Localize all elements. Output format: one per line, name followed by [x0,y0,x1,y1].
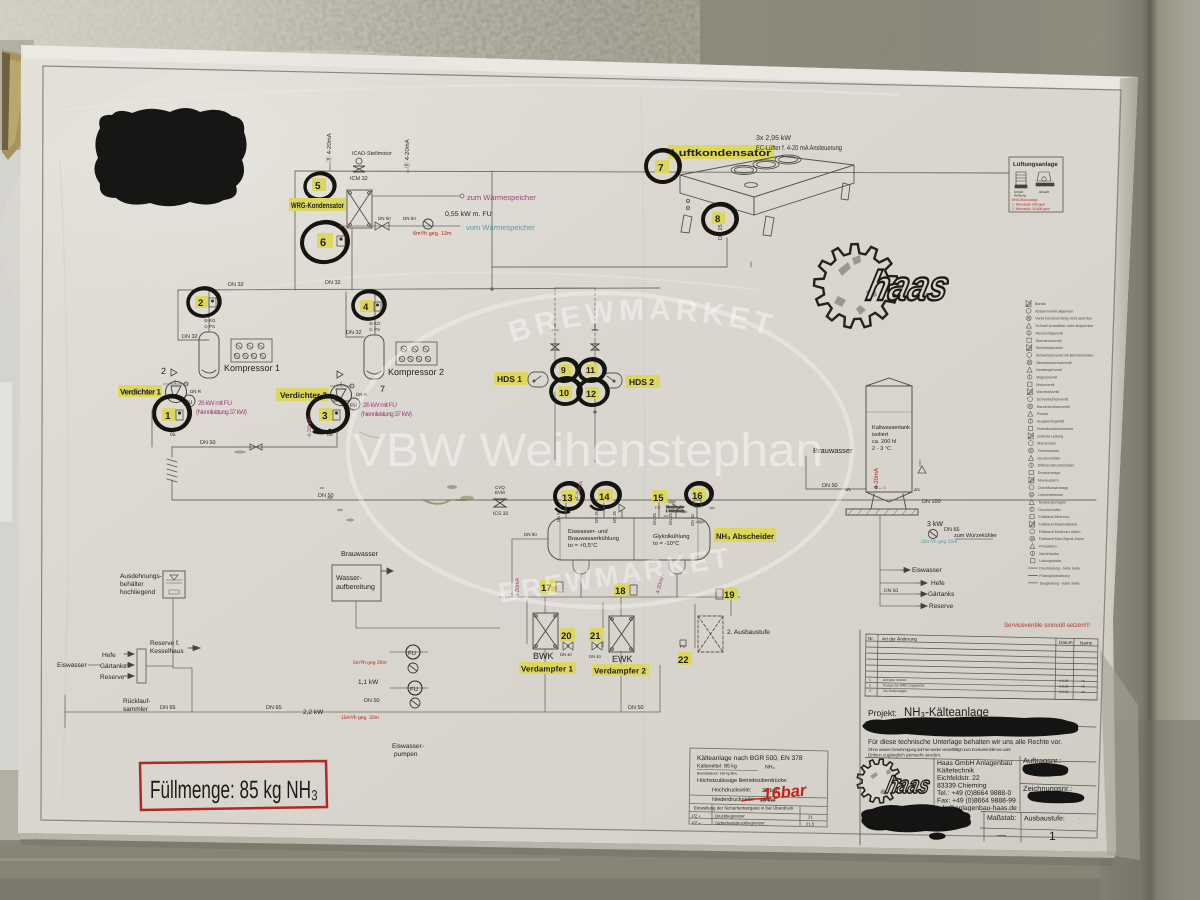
svg-text:⊙ PS: ⊙ PS [369,327,380,332]
svg-text:DN 50: DN 50 [884,588,898,594]
svg-text:Brauwasser: Brauwasser [341,551,379,558]
svg-text:Druckschalter: Druckschalter [1038,456,1061,460]
svg-text:Magnetventil: Magnetventil [1036,376,1057,380]
svg-text:Hochdruckschwimmer: Hochdruckschwimmer [1037,427,1074,431]
svg-text:Manometer: Manometer [1037,442,1056,446]
svg-text:Fax: +49 (0)8664 9888-99: Fax: +49 (0)8664 9888-99 [937,798,1016,805]
svg-text:15: 15 [653,493,664,504]
svg-text:DN 50: DN 50 [378,216,391,221]
svg-text:Überströmschaltventil: Überströmschaltventil [1036,360,1072,365]
svg-text:25m³/h geg 25m: 25m³/h geg 25m [921,539,957,545]
svg-text:Maßstab:: Maßstab: [987,814,1016,822]
svg-text:Kälteanlage nach BGR 500, EN: Kälteanlage nach BGR 500, EN 378 [697,755,803,762]
svg-text:3 kW: 3 kW [927,520,943,528]
svg-text:FU: FU [410,686,418,693]
svg-text:Wasser-: Wasser- [336,575,362,582]
svg-text:DN 50: DN 50 [200,440,216,446]
svg-text:zum Würzekühler: zum Würzekühler [954,533,997,539]
svg-text:Lüftungsanlage: Lüftungsanlage [1013,161,1058,168]
svg-text:FU: FU [680,644,685,649]
svg-text:FU: FU [655,505,660,510]
svg-text:Verdampfer 2: Verdampfer 2 [594,667,647,676]
svg-text:Leitwertmesser: Leitwertmesser [1038,493,1064,497]
svg-text:Rücklauf-: Rücklauf- [123,698,150,705]
svg-text:2 - 3 °C: 2 - 3 °C [872,446,891,452]
svg-text:Produktion: Produktion [1039,545,1057,549]
svg-text:3: 3 [322,411,328,422]
svg-text:DN 65: DN 65 [266,705,282,711]
svg-text:7: 7 [380,384,385,394]
svg-text:vb: vb [1081,685,1085,689]
svg-text:Kaltwassertank: Kaltwassertank [872,424,910,431]
svg-text:Höchstzulässige Betriebsüberdr: Höchstzulässige Betriebsüberdrücke: [697,778,788,784]
svg-text:DN 25: DN 25 [612,510,617,523]
svg-text:Serviceventile sinnvoll setzen: Serviceventile sinnvoll setzen!!! [1004,622,1090,629]
svg-text:26 kW mit FU: 26 kW mit FU [363,402,397,409]
svg-text:haas: haas [863,262,955,309]
svg-text:Gärtanks: Gärtanks [928,591,955,598]
svg-text:Armatur ersetzt: Armatur ersetzt [883,678,906,682]
svg-text:8: 8 [715,214,720,225]
svg-text:Druckbegrenzer: Druckbegrenzer [715,814,745,819]
svg-text:Ausgleichsgefäß: Ausgleichsgefäß [1037,420,1065,424]
svg-text:Datum: Datum [1059,640,1073,645]
svg-text:Handregelventil: Handregelventil [1036,368,1062,372]
svg-text:NH3-Warnanlage: NH3-Warnanlage [1012,198,1038,202]
svg-text:DN 25: DN 25 [668,512,673,525]
svg-text:DN 50: DN 50 [690,513,695,526]
svg-text:Füllstand Minimum: Füllstand Minimum [1039,515,1070,519]
svg-text:Haas GmbH Anlagenbau: Haas GmbH Anlagenbau [937,760,1012,767]
svg-text:9: 9 [561,365,566,375]
svg-text:ICS 32: ICS 32 [493,511,509,517]
svg-text:⊙ PS: ⊙ PS [204,324,215,329]
svg-text:Dritten zugänglich gemacht wer: Dritten zugänglich gemacht werden. [868,753,941,758]
svg-text:WRG-Kondensator: WRG-Kondensator [291,201,344,210]
svg-text:2te Änderungen: 2te Änderungen [883,689,907,693]
svg-text:Saugleitung - kalte Seite: Saugleitung - kalte Seite [1040,581,1080,585]
svg-text:1: 1 [165,411,171,422]
svg-text:4-20mA: 4-20mA [307,417,313,437]
svg-text:d/c: d/c [914,487,921,492]
svg-text:isoliert: isoliert [872,431,889,438]
svg-text:Reserve f.: Reserve f. [150,640,180,647]
svg-text:DN 32: DN 32 [325,280,341,286]
svg-text:Motorventil: Motorventil [1036,383,1054,387]
svg-text:Absperrventil allgemein: Absperrventil allgemein [1035,309,1073,313]
svg-text:Kühlung: Kühlung [1014,194,1026,198]
svg-text:f. Sicherheits: f. Sicherheits [666,509,685,513]
svg-text:Ablueft: Ablueft [1039,190,1049,194]
svg-text:11: 11 [586,365,595,375]
svg-text:Eichfeldstr. 22: Eichfeldstr. 22 [937,775,980,782]
svg-text:Füllmenge: 85 kg NH₃: Füllmenge: 85 kg NH₃ [150,776,318,804]
svg-text:10: 10 [559,388,569,398]
svg-text:Differenzdruckschalter: Differenzdruckschalter [1038,464,1075,468]
svg-text:Ohne unsere Genehmigung darf s: Ohne unsere Genehmigung darf sie weder v… [868,747,1012,752]
svg-text:Sicherheitsventil mit Bernstei: Sicherheitsventil mit Bernsteinhebe [1036,353,1094,357]
svg-text:05: 05 [170,432,176,438]
svg-text:to = +0,5°C: to = +0,5°C [568,542,597,549]
svg-text:Thermometer: Thermometer [1037,449,1060,453]
svg-text:05: 05 [327,432,333,438]
svg-text:Sicherheitsdruckbegrenzer: Sicherheitsdruckbegrenzer [715,821,765,826]
svg-text:pumpen: pumpen [394,751,418,758]
svg-text:Flüssigkeitsleitung: Flüssigkeitsleitung [1039,574,1069,578]
svg-text:DN 50: DN 50 [364,698,380,704]
svg-text:3.9.20: 3.9.20 [1059,690,1069,694]
svg-text:Hefe: Hefe [102,652,116,659]
svg-text:Eiswasser: Eiswasser [57,662,87,669]
svg-text:Eiswasser-: Eiswasser- [392,743,424,750]
svg-text:1: 1 [1049,829,1056,843]
svg-text:20: 20 [561,631,572,642]
svg-text:1,1 kW: 1,1 kW [358,679,379,686]
svg-text:Hochdruckseite:: Hochdruckseite: [712,788,752,794]
svg-text:ICAD-Stellmotor: ICAD-Stellmotor [352,151,392,157]
svg-text:2. Ausbaustufe: 2. Ausbaustufe [727,629,770,636]
svg-text:NH₃: NH₃ [765,765,775,771]
svg-text:PZ +: PZ + [692,814,702,819]
svg-text:FU: FU [408,650,416,657]
svg-text:83339 Chieming: 83339 Chieming [937,783,987,790]
svg-text:2: 2 [869,684,871,688]
svg-text:9.8.20: 9.8.20 [1059,679,1069,683]
svg-text:to = -10°C: to = -10°C [653,540,679,547]
svg-text:Ausbaustufe:: Ausbaustufe: [1024,815,1065,823]
svg-text:Hefe: Hefe [931,580,945,587]
svg-text:EWK: EWK [612,654,633,664]
svg-text:Schnellschlußventil: Schnellschlußventil [1037,398,1069,402]
svg-text:15m³/h geg. 20m: 15m³/h geg. 20m [341,715,379,721]
svg-text:Rückschlagventil: Rückschlagventil [1036,331,1064,335]
svg-text:2. Warnstufe 10.000 ppm: 2. Warnstufe 10.000 ppm [1012,207,1050,211]
svg-text:Füllstand Minimum-Alarm: Füllstand Minimum-Alarm [1039,530,1081,534]
svg-text:1. Warnstufe 500 ppm: 1. Warnstufe 500 ppm [1012,203,1045,207]
svg-text:22: 22 [678,655,689,666]
svg-text:⊘ KG: ⊘ KG [369,321,381,326]
svg-text:Pumpe: Pumpe [1037,412,1049,416]
svg-text:Druckleitung - helle Seite: Druckleitung - helle Seite [1039,567,1080,571]
svg-text:2: 2 [161,366,166,376]
svg-text:1: 1 [869,678,871,682]
svg-text:Nr.: Nr. [868,636,874,641]
svg-text:Sicherheitsventil: Sicherheitsventil [1036,346,1063,350]
svg-text:Handmembranventil: Handmembranventil [1037,405,1070,409]
svg-text:HDS 1: HDS 1 [497,374,522,384]
svg-text:Für diese technische Unterlage: Für diese technische Unterlage behalten … [868,738,1062,746]
svg-text:Druckschalter: Druckschalter [1038,508,1061,512]
svg-text:DN 100: DN 100 [922,499,941,505]
svg-text:Einstellung der Sicherheitsorg: Einstellung der Sicherheitsorgane in bar… [694,806,794,811]
svg-text:Ventil betriebsmäßig nicht spe: Ventil betriebsmäßig nicht sperrbar [1035,317,1093,321]
svg-text:5m³/h geg 20m: 5m³/h geg 20m [353,660,387,666]
svg-text:⊘↔○: ⊘↔○ [874,485,886,491]
svg-text:vb: vb [1081,690,1085,694]
svg-text:BWK: BWK [533,651,554,661]
svg-text:EC-Lüfter f. 4-20 mA Ansteueru: EC-Lüfter f. 4-20 mA Ansteuerung [756,144,842,152]
svg-text:21,5: 21,5 [806,822,815,827]
svg-text:Glykolkühlung: Glykolkühlung [653,533,689,540]
svg-text:HDS 2: HDS 2 [629,377,654,387]
svg-text:Ⓢ 4-20mA: Ⓢ 4-20mA [403,139,411,168]
svg-text:haas: haas [883,772,933,799]
svg-text:Kältemittel: 85 kg: Kältemittel: 85 kg [697,764,737,770]
svg-text:Kesselhaus: Kesselhaus [150,648,184,655]
svg-text:DN 65: DN 65 [160,705,176,711]
svg-text:Verdampfer 1: Verdampfer 1 [521,665,574,674]
svg-text:vom Wärmespeicher: vom Wärmespeicher [466,223,535,232]
svg-text:19: 19 [724,590,735,601]
svg-text:DN 50: DN 50 [822,483,838,489]
svg-text:Gärtanks: Gärtanks [100,663,127,670]
svg-text:aufbereitung: aufbereitung [336,583,375,591]
svg-text:Name: Name [1080,641,1093,646]
svg-text:5: 5 [315,181,321,192]
svg-text:DN R: DN R [190,389,202,394]
svg-text:Füllstand Maximalstand: Füllstand Maximalstand [1039,523,1078,527]
svg-text:13: 13 [562,493,573,504]
svg-text:ICM 32: ICM 32 [350,176,368,182]
svg-text:Schnell umstellbar nicht abspe: Schnell umstellbar nicht absperrbar [1035,324,1094,328]
svg-text:4: 4 [363,302,369,313]
svg-text:26 kW mit FU: 26 kW mit FU [198,400,232,407]
svg-text:Brauwasserkühlung: Brauwasserkühlung [568,535,619,542]
svg-text:DN 25: DN 25 [718,224,724,240]
svg-text:Reserve: Reserve [100,674,125,681]
svg-text:7: 7 [658,163,664,174]
svg-text:Kompressor 2: Kompressor 2 [388,367,444,377]
svg-text:Temperaturregler: Temperaturregler [1038,500,1067,504]
svg-text:ca. 200 hl: ca. 200 hl [872,438,896,445]
svg-text:⊘ KG: ⊘ KG [204,318,216,323]
svg-text:DN 25: DN 25 [652,512,657,525]
svg-text:(Nennleistung 37 kW): (Nennleistung 37 kW) [196,409,247,416]
svg-text:DN 50: DN 50 [524,532,537,537]
svg-text:Überströmventil: Überströmventil [1036,338,1062,343]
svg-text:DN 32: DN 32 [182,334,198,340]
svg-text:Niveaualarm: Niveaualarm [1038,478,1059,482]
svg-text:DN 25: DN 25 [594,510,599,523]
svg-text:Bande: Bande [1035,302,1046,306]
svg-text:behälter: behälter [120,581,144,588]
svg-text:DN 50: DN 50 [628,705,644,711]
svg-text:Art der Änderung: Art der Änderung [882,637,917,642]
svg-text:Kältetechnik: Kältetechnik [937,768,975,775]
svg-text:hochliegend: hochliegend [120,589,155,596]
svg-text:—: — [997,830,1006,840]
svg-text:Pumpe für WRG angepasst: Pumpe für WRG angepasst [883,684,925,688]
svg-text:DN 50: DN 50 [556,509,561,522]
svg-text:Wartehaube: Wartehaube [1039,552,1059,556]
svg-text:Reserve: Reserve [929,603,954,610]
svg-text:Wechselventil: Wechselventil [1036,390,1059,394]
svg-text:Durchflussanzeige: Durchflussanzeige [1038,486,1068,490]
svg-text:Füllstand Max-Signal-Alarm: Füllstand Max-Signal-Alarm [1039,537,1084,541]
svg-text:DN 32: DN 32 [346,330,362,336]
svg-text:VBW Weihenstephan: VBW Weihenstephan [353,423,823,476]
svg-text:Verdichter 1: Verdichter 1 [120,388,162,397]
svg-text:PZ +: PZ + [692,821,702,826]
svg-text:zum Wärmespeicher: zum Wärmespeicher [467,193,536,202]
svg-text:2,2 kW: 2,2 kW [303,709,324,716]
svg-text:6: 6 [320,237,326,249]
svg-text:Ausdehnungs-: Ausdehnungs- [120,573,162,580]
svg-text:14: 14 [599,492,610,503]
svg-text:NH₃ Abscheider: NH₃ Abscheider [716,532,774,541]
svg-text:Projekt:: Projekt: [868,708,897,718]
svg-text:21: 21 [590,631,601,642]
svg-text:DN 32: DN 32 [228,282,244,288]
svg-text:CVQ: CVQ [495,485,505,490]
svg-text:DN 40: DN 40 [560,652,573,657]
svg-text:(Nennleistung 37 kW): (Nennleistung 37 kW) [361,411,412,418]
svg-text:3x 2,95 kW: 3x 2,95 kW [756,134,791,142]
svg-text:9.8.20: 9.8.20 [1059,685,1069,689]
svg-text:0,55 kW m. FU: 0,55 kW m. FU [445,210,492,218]
svg-text:Ⓢ 4-20mA: Ⓢ 4-20mA [325,133,333,162]
svg-text:Betriebsdruck: 160 kg NH₃: Betriebsdruck: 160 kg NH₃ [697,772,738,776]
svg-text:Eiswasser: Eiswasser [912,567,942,574]
svg-text:Kompressor 1: Kompressor 1 [224,363,280,373]
svg-text:3: 3 [869,689,871,693]
svg-text:EVM: EVM [495,490,505,495]
svg-text:vb: vb [1081,679,1085,683]
svg-text:Tel.: +49 (0)8664 9888-0: Tel.: +49 (0)8664 9888-0 [937,790,1011,797]
svg-text:Eiswasser- und: Eiswasser- und [568,528,608,535]
svg-text:Leitungsende: Leitungsende [1039,559,1061,563]
svg-text:21: 21 [808,815,813,820]
svg-text:2: 2 [198,298,203,309]
svg-text:12: 12 [586,389,596,399]
svg-text:Druckanzeige: Druckanzeige [1038,471,1061,475]
svg-text:DN 40: DN 40 [589,654,602,659]
svg-text:DN 50: DN 50 [403,216,416,221]
svg-text:Isolierte Leitung: Isolierte Leitung [1037,434,1063,438]
svg-text:6m³/h geg. 12m: 6m³/h geg. 12m [413,231,452,237]
